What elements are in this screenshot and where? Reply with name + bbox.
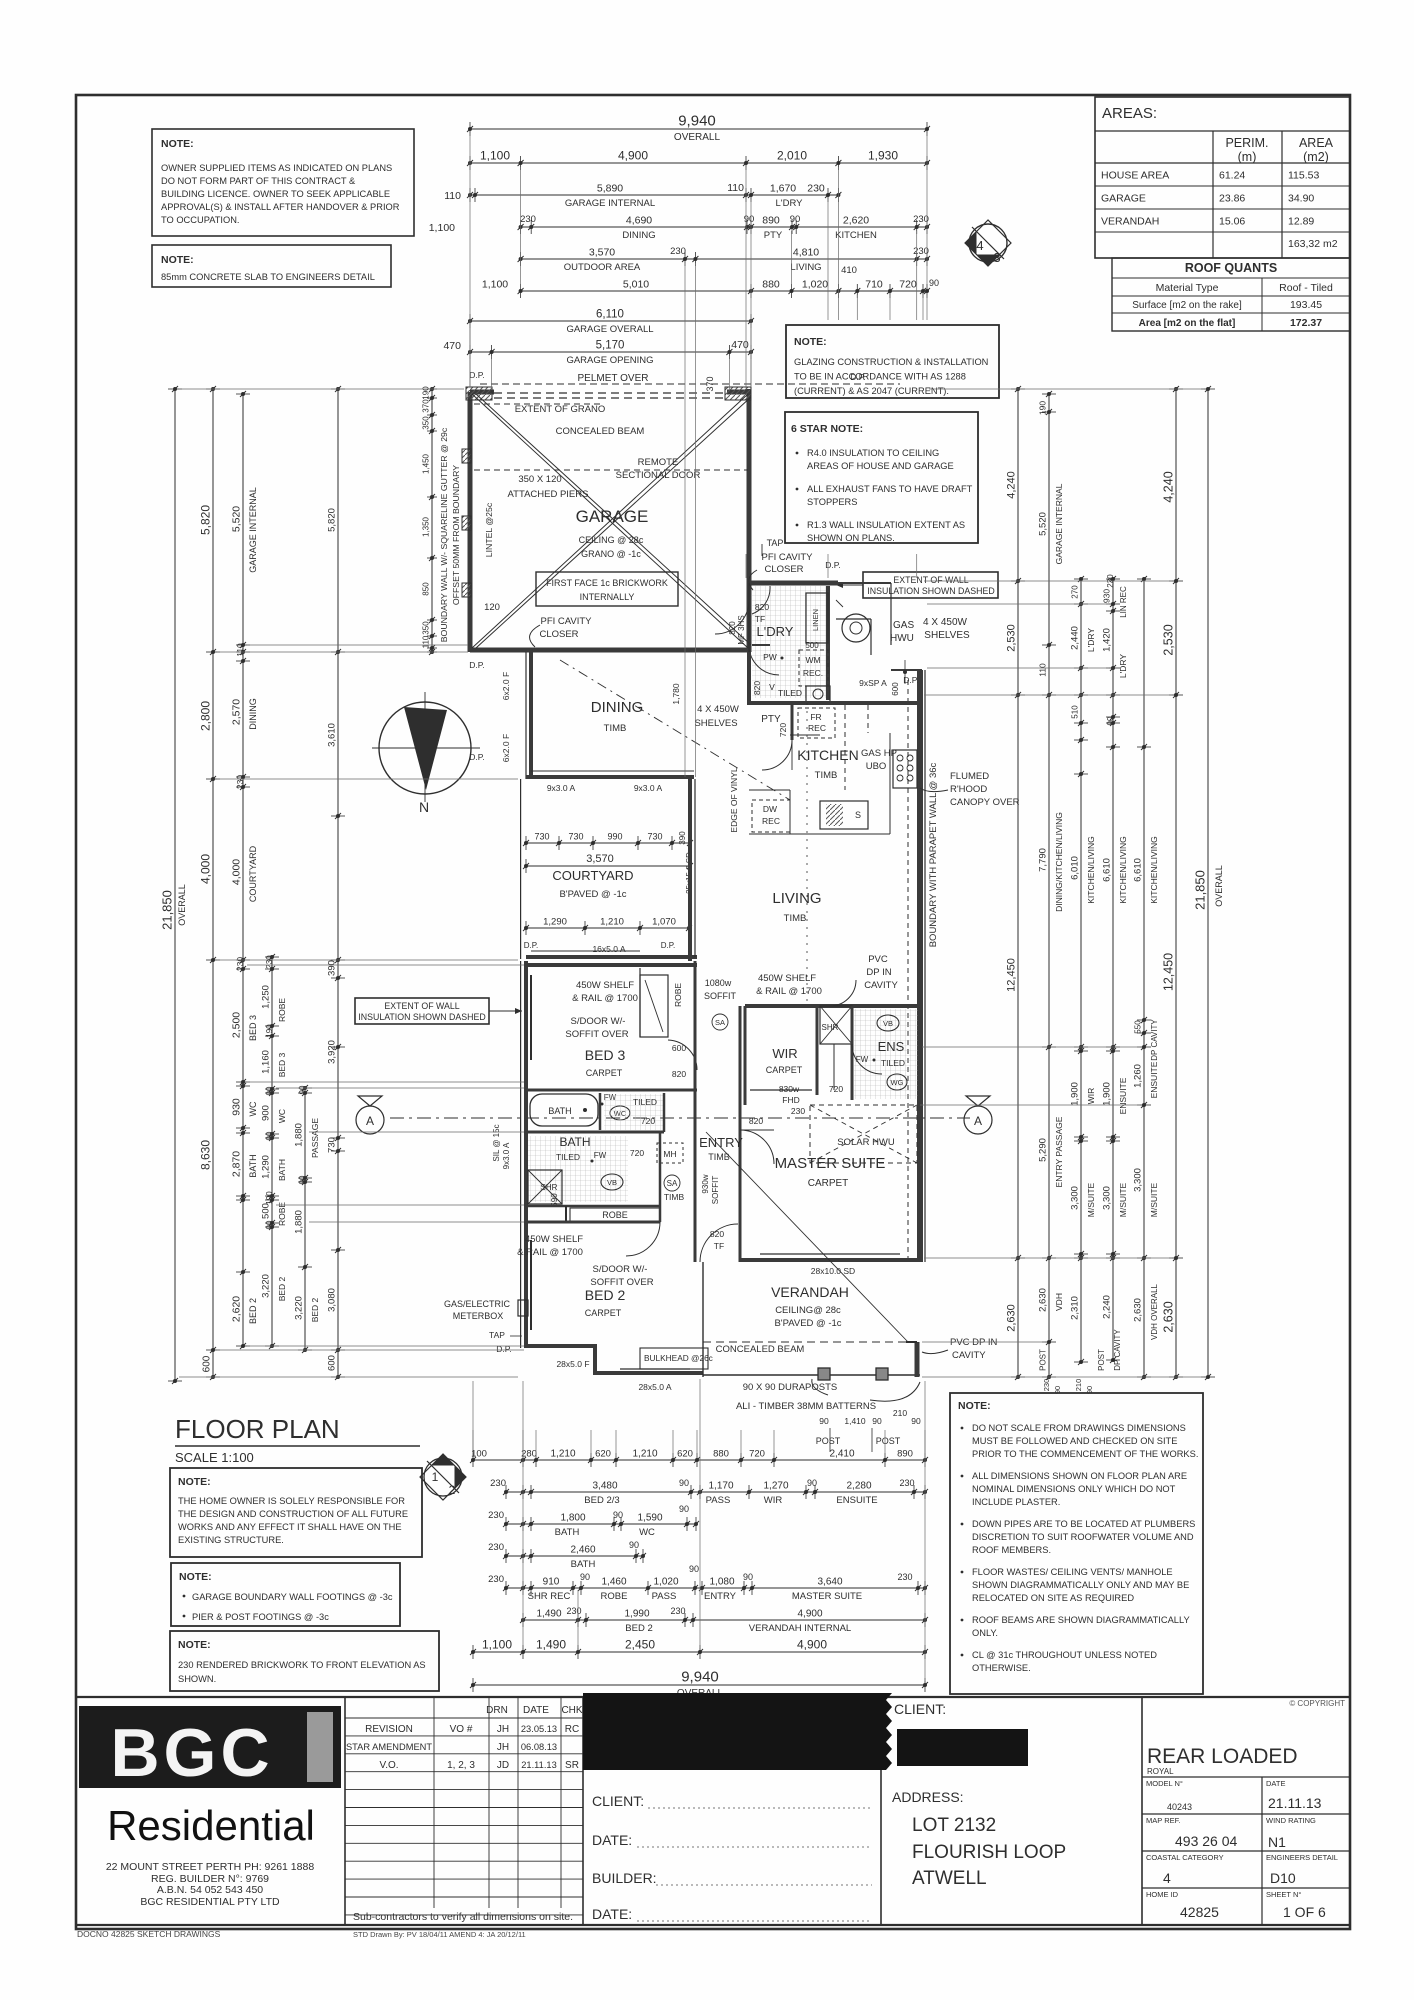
- svg-text:NOMINAL DIMENSIONS ONLY WHICH: NOMINAL DIMENSIONS ONLY WHICH DO NOT: [972, 1484, 1176, 1494]
- svg-text:6,610: 6,610: [1102, 858, 1113, 882]
- svg-text:2,620: 2,620: [843, 215, 869, 227]
- svg-text:9,940: 9,940: [678, 113, 716, 130]
- svg-text:DOCNO 42825 SKETCH DRAWINGS: DOCNO 42825 SKETCH DRAWINGS: [77, 1929, 221, 1939]
- svg-text:ROYAL: ROYAL: [1147, 1767, 1174, 1776]
- svg-text:SOFFIT: SOFFIT: [711, 1176, 720, 1205]
- svg-text:2,630: 2,630: [1006, 1304, 1018, 1332]
- svg-text:590: 590: [550, 1193, 559, 1207]
- svg-text:1,670: 1,670: [770, 183, 796, 195]
- svg-text:390: 390: [327, 960, 338, 976]
- svg-text:TAP: TAP: [767, 538, 784, 548]
- svg-text:90: 90: [819, 1416, 829, 1426]
- svg-text:PASS: PASS: [706, 1495, 731, 1506]
- svg-text:820: 820: [749, 1116, 763, 1126]
- svg-text:190: 190: [422, 386, 431, 400]
- svg-text:JH: JH: [497, 1742, 509, 1753]
- svg-text:110: 110: [422, 635, 431, 648]
- svg-text:1,780: 1,780: [671, 683, 681, 705]
- svg-text:WIR: WIR: [764, 1495, 783, 1506]
- svg-text:KITCHEN/LIVING: KITCHEN/LIVING: [1149, 836, 1159, 904]
- svg-text:SOLAR HWU: SOLAR HWU: [837, 1137, 895, 1148]
- svg-text:KITCHEN/LIVING: KITCHEN/LIVING: [1118, 836, 1128, 904]
- svg-text:GARAGE INTERNAL: GARAGE INTERNAL: [565, 198, 655, 209]
- svg-text:HOUSE AREA: HOUSE AREA: [1101, 170, 1169, 182]
- svg-text:1,170: 1,170: [708, 1481, 733, 1492]
- svg-text:CARPET: CARPET: [766, 1065, 803, 1075]
- svg-text:1,210: 1,210: [550, 1449, 575, 1460]
- svg-text:830w: 830w: [779, 1084, 800, 1094]
- svg-text:21,850: 21,850: [160, 890, 175, 930]
- svg-text:CLIENT:: CLIENT:: [894, 1701, 946, 1717]
- svg-text:VERANDAH: VERANDAH: [771, 1284, 849, 1300]
- svg-text:SHOWN ON PLANS.: SHOWN ON PLANS.: [807, 533, 895, 543]
- svg-text:720: 720: [630, 1148, 644, 1158]
- svg-text:TIMB: TIMB: [784, 913, 807, 924]
- svg-text:230: 230: [490, 1478, 506, 1489]
- svg-text:450W SHELF: 450W SHELF: [576, 980, 634, 991]
- svg-text:ATTACHED PIERS: ATTACHED PIERS: [508, 489, 589, 500]
- svg-text:600: 600: [672, 1043, 686, 1053]
- svg-text:8,630: 8,630: [199, 1140, 213, 1170]
- svg-text:L'DRY: L'DRY: [776, 198, 804, 209]
- svg-text:90: 90: [613, 1510, 623, 1520]
- svg-text:KITCHEN: KITCHEN: [835, 230, 877, 241]
- svg-text:5,520: 5,520: [231, 506, 243, 532]
- svg-text:SIL @ 15c: SIL @ 15c: [492, 1124, 501, 1161]
- svg-text:D.P.: D.P.: [661, 941, 676, 950]
- svg-text:EDGE OF VINYL: EDGE OF VINYL: [729, 767, 739, 832]
- svg-text:230: 230: [899, 1478, 914, 1488]
- svg-text:4,900: 4,900: [618, 149, 648, 163]
- svg-text:2,630: 2,630: [1133, 1298, 1144, 1322]
- svg-text:LINTEL @25c: LINTEL @25c: [484, 502, 494, 557]
- svg-text:1,490: 1,490: [536, 1638, 566, 1652]
- svg-text:(m): (m): [1238, 150, 1257, 164]
- svg-text:ALI - TIMBER 38MM BATTERNS: ALI - TIMBER 38MM BATTERNS: [736, 1401, 876, 1412]
- svg-text:5,890: 5,890: [597, 183, 623, 195]
- svg-text:ROBE: ROBE: [602, 1210, 628, 1220]
- svg-text:UBO: UBO: [866, 761, 887, 772]
- svg-text:THE DESIGN AND CONSTRUCTION OF: THE DESIGN AND CONSTRUCTION OF ALL FUTUR…: [178, 1509, 408, 1519]
- svg-text:FLOOR PLAN: FLOOR PLAN: [175, 1414, 340, 1444]
- svg-text:890: 890: [897, 1449, 913, 1460]
- svg-text:2,530: 2,530: [1006, 624, 1018, 652]
- svg-text:9x3.0 A: 9x3.0 A: [547, 783, 576, 793]
- svg-text:LINEN: LINEN: [811, 609, 820, 631]
- svg-text:1,160: 1,160: [261, 1050, 272, 1074]
- svg-text:CONCEALED BEAM: CONCEALED BEAM: [716, 1344, 805, 1355]
- svg-text:5,170: 5,170: [596, 340, 625, 352]
- svg-text:N1: N1: [1268, 1834, 1286, 1850]
- svg-text:HWU: HWU: [890, 633, 914, 644]
- svg-text:POST: POST: [1039, 1349, 1048, 1371]
- svg-text:ROBE: ROBE: [673, 983, 683, 1007]
- svg-text:2,280: 2,280: [846, 1481, 871, 1492]
- svg-text:2,240: 2,240: [1102, 1295, 1113, 1319]
- svg-text:D10: D10: [1270, 1870, 1296, 1886]
- svg-text:DP IN: DP IN: [866, 967, 891, 978]
- svg-text:100: 100: [471, 1449, 487, 1460]
- svg-text:450W SHELF: 450W SHELF: [758, 973, 816, 984]
- svg-text:850: 850: [422, 582, 431, 596]
- svg-text:D.P.: D.P.: [469, 752, 484, 762]
- svg-text:R4.0 INSULATION TO CEILING: R4.0 INSULATION TO CEILING: [807, 448, 939, 458]
- svg-text:BOUNDARY WALL W/- SQUARELINE G: BOUNDARY WALL W/- SQUARELINE GUTTER @ 29…: [439, 427, 449, 642]
- svg-text:110: 110: [1038, 663, 1048, 677]
- svg-text:APPROVAL(S) & INSTALL AFTER HA: APPROVAL(S) & INSTALL AFTER HANDOVER & P…: [161, 202, 400, 212]
- svg-text:90: 90: [265, 1220, 274, 1229]
- svg-text:TF: TF: [755, 614, 765, 624]
- svg-text:BUILDER:: BUILDER:: [592, 1870, 657, 1886]
- svg-text:DOWN PIPES ARE TO BE LOCATED A: DOWN PIPES ARE TO BE LOCATED AT PLUMBERS: [972, 1519, 1195, 1529]
- svg-text:SA: SA: [715, 1018, 725, 1027]
- svg-text:DATE:: DATE:: [592, 1832, 632, 1848]
- svg-text:GARAGE: GARAGE: [1101, 193, 1146, 205]
- svg-text:61.24: 61.24: [1219, 170, 1245, 182]
- svg-text:6,010: 6,010: [1070, 856, 1081, 880]
- svg-text:& RAIL @ 1700: & RAIL @ 1700: [572, 993, 638, 1004]
- svg-text:2,440: 2,440: [1070, 626, 1081, 650]
- svg-text:REC: REC: [762, 816, 780, 826]
- svg-text:3,220: 3,220: [294, 1296, 305, 1320]
- svg-text:230: 230: [913, 246, 929, 257]
- svg-text:ENSUITE: ENSUITE: [836, 1495, 877, 1506]
- svg-text:230: 230: [913, 214, 929, 225]
- svg-text:730: 730: [327, 1137, 338, 1153]
- svg-text:TIMB: TIMB: [664, 1192, 685, 1202]
- svg-text:OVERALL: OVERALL: [674, 132, 721, 143]
- svg-text:880: 880: [762, 279, 780, 291]
- svg-text:SHELVES: SHELVES: [924, 630, 970, 641]
- svg-text:ADDRESS:: ADDRESS:: [892, 1789, 964, 1805]
- svg-text:CLOSER: CLOSER: [539, 629, 578, 640]
- svg-text:BGC RESIDENTIAL PTY LTD: BGC RESIDENTIAL PTY LTD: [140, 1896, 280, 1908]
- svg-text:B'PAVED @ -1c: B'PAVED @ -1c: [559, 889, 626, 900]
- svg-text:90: 90: [298, 1175, 307, 1184]
- svg-text:16x5.0 A: 16x5.0 A: [592, 944, 625, 954]
- svg-text:190: 190: [1038, 401, 1048, 415]
- svg-text:90: 90: [298, 1085, 307, 1094]
- svg-text:230: 230: [566, 1606, 581, 1616]
- svg-text:LOT 2132: LOT 2132: [912, 1815, 996, 1836]
- svg-text:500: 500: [805, 641, 819, 650]
- svg-text:1,260: 1,260: [1133, 1064, 1144, 1088]
- svg-text:D.P.: D.P.: [469, 660, 484, 670]
- svg-text:3,300: 3,300: [1133, 1168, 1144, 1192]
- svg-text:FLOURISH LOOP: FLOURISH LOOP: [912, 1842, 1066, 1863]
- svg-text:WC: WC: [277, 1109, 287, 1123]
- svg-text:GLAZING CONSTRUCTION & INSTALL: GLAZING CONSTRUCTION & INSTALLATION: [794, 357, 988, 367]
- svg-text:S/DOOR W/-: S/DOOR W/-: [571, 1016, 626, 1027]
- svg-text:M/SUITE: M/SUITE: [1118, 1182, 1128, 1217]
- svg-text:3,610: 3,610: [327, 723, 338, 747]
- svg-text:2,450: 2,450: [625, 1638, 655, 1652]
- svg-text:BED 3: BED 3: [277, 1052, 287, 1077]
- svg-text:2,870: 2,870: [231, 1151, 243, 1177]
- svg-text:TF: TF: [714, 1241, 724, 1251]
- svg-text:2,630: 2,630: [1038, 1288, 1049, 1312]
- svg-text:3,480: 3,480: [592, 1481, 617, 1492]
- svg-text:9x3.0 A: 9x3.0 A: [502, 1142, 511, 1169]
- svg-text:PVC: PVC: [868, 954, 888, 965]
- svg-text:90: 90: [743, 1572, 753, 1582]
- svg-text:WG: WG: [891, 1078, 904, 1087]
- svg-text:REC: REC: [808, 723, 826, 733]
- svg-text:OVERALL: OVERALL: [177, 884, 187, 926]
- svg-text:TIMB: TIMB: [815, 770, 838, 781]
- svg-text:350: 350: [422, 416, 431, 430]
- svg-text:(CURRENT) & AS 2047 (CURRENT).: (CURRENT) & AS 2047 (CURRENT).: [794, 386, 949, 396]
- svg-text:FLOOR WASTES/ CEILING VENTS/ M: FLOOR WASTES/ CEILING VENTS/ MANHOLE: [972, 1567, 1173, 1577]
- svg-text:22 MOUNT STREET PERTH PH: 9261: 22 MOUNT STREET PERTH PH: 9261 1888: [106, 1861, 314, 1873]
- svg-text:GARAGE: GARAGE: [576, 507, 649, 526]
- svg-text:BOUNDARY WITH PARAPET WALL @ 3: BOUNDARY WITH PARAPET WALL @ 36c: [928, 762, 939, 947]
- svg-text:720: 720: [749, 1449, 765, 1460]
- svg-text:820: 820: [672, 1069, 686, 1079]
- svg-text:L'DRY: L'DRY: [1118, 654, 1128, 678]
- svg-text:GARAGE OVERALL: GARAGE OVERALL: [566, 324, 653, 335]
- svg-text:620: 620: [677, 1449, 693, 1460]
- svg-text:POST: POST: [1097, 1349, 1106, 1371]
- svg-text:230: 230: [235, 957, 245, 971]
- svg-text:Sub-contractors to verify all: Sub-contractors to verify all dimensions…: [353, 1911, 573, 1923]
- svg-text:4: 4: [976, 238, 983, 253]
- svg-text:1 OF 6: 1 OF 6: [1283, 1904, 1326, 1920]
- svg-text:WIND RATING: WIND RATING: [1266, 1816, 1316, 1825]
- svg-text:6,110: 6,110: [596, 309, 624, 321]
- svg-text:TO OCCUPATION.: TO OCCUPATION.: [161, 215, 240, 225]
- svg-text:BATH: BATH: [548, 1106, 571, 1116]
- svg-text:28x5.0 F: 28x5.0 F: [556, 1359, 589, 1369]
- svg-text:1,210: 1,210: [600, 917, 624, 928]
- svg-text:12,450: 12,450: [1162, 953, 1176, 991]
- svg-text:06.08.13: 06.08.13: [521, 1742, 557, 1752]
- svg-text:FLUMED: FLUMED: [950, 771, 989, 782]
- svg-text:90: 90: [679, 1478, 689, 1488]
- svg-text:Material Type: Material Type: [1156, 282, 1219, 294]
- svg-text:INTERNALLY: INTERNALLY: [580, 592, 635, 602]
- svg-text:600: 600: [891, 682, 900, 696]
- svg-text:3,300: 3,300: [1102, 1186, 1113, 1210]
- svg-text:M/SUITE: M/SUITE: [1086, 1182, 1096, 1217]
- svg-text:620: 620: [595, 1449, 611, 1460]
- svg-text:2,010: 2,010: [777, 149, 807, 163]
- svg-text:POST: POST: [876, 1436, 901, 1446]
- svg-text:SHR: SHR: [822, 1023, 839, 1032]
- svg-text:WM: WM: [805, 655, 820, 665]
- svg-text:1,590: 1,590: [637, 1513, 662, 1524]
- svg-text:BUILDING LICENCE. OWNER TO SEE: BUILDING LICENCE. OWNER TO SEEK APPLICAB…: [161, 189, 390, 199]
- svg-text:370: 370: [705, 376, 715, 391]
- svg-text:5,820: 5,820: [199, 505, 213, 535]
- svg-text:VERANDAH: VERANDAH: [1101, 216, 1159, 228]
- svg-text:S/DOOR W/-: S/DOOR W/-: [593, 1264, 648, 1275]
- svg-text:& RAIL @ 1700: & RAIL @ 1700: [517, 1247, 583, 1258]
- svg-text:TILED: TILED: [556, 1152, 580, 1162]
- svg-text:730: 730: [568, 832, 583, 842]
- svg-text:210: 210: [1074, 1379, 1083, 1392]
- svg-text:90: 90: [911, 1416, 921, 1426]
- svg-text:230: 230: [488, 1510, 504, 1521]
- svg-text:AREAS OF HOUSE AND GARAGE: AREAS OF HOUSE AND GARAGE: [807, 461, 954, 471]
- svg-text:PFI CAVITY: PFI CAVITY: [761, 552, 813, 563]
- svg-text:REVISION: REVISION: [365, 1724, 413, 1735]
- svg-text:PELMET OVER: PELMET OVER: [578, 373, 649, 384]
- svg-text:DATE:: DATE:: [592, 1906, 632, 1922]
- svg-text:230: 230: [807, 183, 825, 195]
- svg-text:90: 90: [744, 214, 755, 225]
- svg-text:4,240: 4,240: [1006, 471, 1018, 499]
- svg-text:1,270: 1,270: [763, 1481, 788, 1492]
- svg-text:ROOF MEMBERS.: ROOF MEMBERS.: [972, 1545, 1051, 1555]
- svg-text:COURTYARD: COURTYARD: [552, 868, 633, 883]
- svg-text:3,220: 3,220: [261, 1274, 272, 1298]
- svg-text:1,350: 1,350: [422, 516, 431, 537]
- svg-text:410: 410: [841, 265, 857, 276]
- svg-text:SHR: SHR: [541, 1183, 558, 1192]
- svg-text:4,900: 4,900: [797, 1638, 827, 1652]
- svg-text:DP CAVITY: DP CAVITY: [1113, 1329, 1122, 1371]
- svg-text:270: 270: [1071, 585, 1080, 599]
- svg-text:SOFFIT OVER: SOFFIT OVER: [565, 1029, 628, 1040]
- svg-text:1,210: 1,210: [632, 1449, 657, 1460]
- svg-text:SA: SA: [667, 1179, 678, 1188]
- svg-text:230: 230: [791, 1106, 805, 1116]
- svg-text:720: 720: [899, 279, 917, 291]
- svg-text:820: 820: [728, 621, 737, 635]
- svg-text:REC.: REC.: [803, 668, 823, 678]
- svg-text:ONLY.: ONLY.: [972, 1628, 998, 1638]
- svg-text:BED 3: BED 3: [585, 1047, 626, 1063]
- svg-text:D.P.: D.P.: [903, 675, 918, 685]
- svg-text:190: 190: [265, 1024, 274, 1038]
- svg-text:OUTDOOR AREA: OUTDOOR AREA: [564, 262, 641, 273]
- svg-text:FW: FW: [594, 1151, 607, 1160]
- svg-text:90: 90: [265, 1086, 274, 1095]
- svg-text:6 STAR NOTE:: 6 STAR NOTE:: [791, 423, 863, 435]
- svg-text:720: 720: [829, 1084, 843, 1094]
- svg-text:NOTE:: NOTE:: [179, 1571, 212, 1583]
- svg-text:CANOPY OVER: CANOPY OVER: [950, 797, 1020, 808]
- svg-text:VO #: VO #: [450, 1724, 473, 1735]
- svg-text:L'DRY: L'DRY: [757, 624, 794, 639]
- svg-text:GARAGE BOUNDARY WALL FOOTINGS: GARAGE BOUNDARY WALL FOOTINGS @ -3c: [192, 1592, 393, 1602]
- svg-text:A: A: [974, 1114, 982, 1128]
- svg-text:FW: FW: [856, 1055, 869, 1064]
- svg-text:WORKS AND ANY EFFECT IT SHALL: WORKS AND ANY EFFECT IT SHALL HAVE ON TH…: [178, 1522, 402, 1532]
- svg-text:2,460: 2,460: [570, 1545, 595, 1556]
- svg-text:4 X 450W: 4 X 450W: [697, 704, 739, 715]
- svg-text:230: 230: [520, 214, 536, 225]
- svg-text:METERBOX: METERBOX: [453, 1311, 504, 1321]
- svg-text:DRN: DRN: [486, 1705, 508, 1716]
- svg-text:ROOF BEAMS ARE SHOWN DIAGRAMMA: ROOF BEAMS ARE SHOWN DIAGRAMMATICALLY: [972, 1615, 1190, 1625]
- svg-text:GARAGE INTERNAL: GARAGE INTERNAL: [248, 487, 258, 573]
- svg-text:85mm CONCRETE SLAB TO ENGINEER: 85mm CONCRETE SLAB TO ENGINEERS DETAIL: [161, 272, 375, 282]
- svg-text:& RAIL @ 1700: & RAIL @ 1700: [756, 986, 822, 997]
- svg-text:MH: MH: [663, 1149, 676, 1159]
- svg-text:21,850: 21,850: [1193, 870, 1208, 910]
- svg-text:RC: RC: [565, 1724, 579, 1735]
- svg-text:3: 3: [993, 250, 1000, 265]
- svg-text:4,000: 4,000: [231, 859, 243, 885]
- svg-text:CLIENT:: CLIENT:: [592, 1793, 644, 1809]
- svg-text:1,990: 1,990: [624, 1609, 649, 1620]
- svg-text:BED 2: BED 2: [277, 1276, 287, 1301]
- svg-text:6,610: 6,610: [1133, 858, 1144, 882]
- svg-text:370: 370: [422, 399, 431, 413]
- svg-text:GARAGE INTERNAL: GARAGE INTERNAL: [1054, 483, 1064, 564]
- svg-text:493 26 04: 493 26 04: [1175, 1833, 1237, 1849]
- svg-text:600: 600: [327, 1355, 338, 1371]
- svg-text:1,290: 1,290: [543, 917, 567, 928]
- svg-text:230: 230: [670, 1606, 685, 1616]
- svg-text:1,490: 1,490: [536, 1609, 561, 1620]
- svg-text:820: 820: [752, 681, 762, 695]
- svg-text:193.45: 193.45: [1290, 299, 1322, 311]
- svg-text:TILED: TILED: [778, 688, 802, 698]
- svg-text:163,32 m2: 163,32 m2: [1288, 238, 1338, 250]
- svg-text:5,010: 5,010: [623, 279, 649, 291]
- svg-text:BED 2: BED 2: [248, 1298, 258, 1324]
- svg-text:90: 90: [629, 1540, 639, 1550]
- svg-text:Residential: Residential: [107, 1802, 315, 1849]
- svg-text:COURTYARD: COURTYARD: [248, 845, 258, 902]
- svg-text:230 RENDERED BRICKWORK TO FRON: 230 RENDERED BRICKWORK TO FRONT ELEVATIO…: [178, 1660, 426, 1670]
- svg-text:SHELVES: SHELVES: [694, 718, 737, 729]
- svg-text:BATH: BATH: [555, 1527, 580, 1538]
- svg-text:1,900: 1,900: [1102, 1082, 1113, 1106]
- svg-text:DP CAVITY: DP CAVITY: [1150, 1019, 1159, 1061]
- svg-text:9xSP A: 9xSP A: [859, 678, 887, 688]
- svg-text:DO NOT SCALE FROM DRAWINGS DIM: DO NOT SCALE FROM DRAWINGS DIMENSIONS: [972, 1423, 1186, 1433]
- svg-text:TILED: TILED: [881, 1058, 905, 1068]
- svg-text:230: 230: [897, 1572, 912, 1582]
- svg-text:LIVING: LIVING: [790, 262, 821, 273]
- svg-text:SOFFIT: SOFFIT: [704, 991, 736, 1001]
- svg-text:5,520: 5,520: [1038, 512, 1049, 536]
- svg-text:450W SHELF: 450W SHELF: [525, 1234, 583, 1245]
- svg-text:230: 230: [235, 775, 245, 789]
- svg-text:PIER & POST FOOTINGS @ -3c: PIER & POST FOOTINGS @ -3c: [192, 1612, 329, 1622]
- svg-text:SOFFIT OVER: SOFFIT OVER: [590, 1277, 653, 1288]
- svg-text:BATH: BATH: [248, 1154, 258, 1177]
- svg-text:1,930: 1,930: [868, 149, 898, 163]
- svg-text:710: 710: [865, 279, 883, 291]
- svg-text:STAR AMENDMENT: STAR AMENDMENT: [346, 1742, 432, 1752]
- svg-text:3,570: 3,570: [589, 247, 615, 259]
- svg-text:REMOTE: REMOTE: [638, 457, 679, 468]
- svg-text:4,000: 4,000: [199, 854, 213, 884]
- svg-text:DISCRETION TO SUIT ROOFWATER V: DISCRETION TO SUIT ROOFWATER VOLUME AND: [972, 1532, 1194, 1542]
- svg-text:BATH: BATH: [571, 1559, 596, 1570]
- svg-text:D.P.: D.P.: [524, 941, 539, 950]
- svg-text:3,080: 3,080: [327, 1288, 338, 1312]
- svg-text:CHK: CHK: [561, 1705, 582, 1716]
- svg-text:890: 890: [762, 215, 780, 227]
- svg-text:4,810: 4,810: [793, 247, 819, 259]
- svg-text:90: 90: [679, 1504, 689, 1514]
- svg-text:(m2): (m2): [1303, 150, 1329, 164]
- svg-text:15.06: 15.06: [1219, 216, 1245, 228]
- svg-text:230: 230: [265, 955, 274, 969]
- svg-text:110: 110: [727, 182, 744, 194]
- svg-text:720: 720: [778, 723, 788, 737]
- svg-text:NOTE:: NOTE:: [178, 1639, 211, 1651]
- svg-text:TO BE IN ACCORDANCE WITH AS 12: TO BE IN ACCORDANCE WITH AS 1288: [794, 372, 966, 382]
- svg-text:1,070: 1,070: [652, 917, 676, 928]
- svg-text:ENS: ENS: [878, 1039, 905, 1054]
